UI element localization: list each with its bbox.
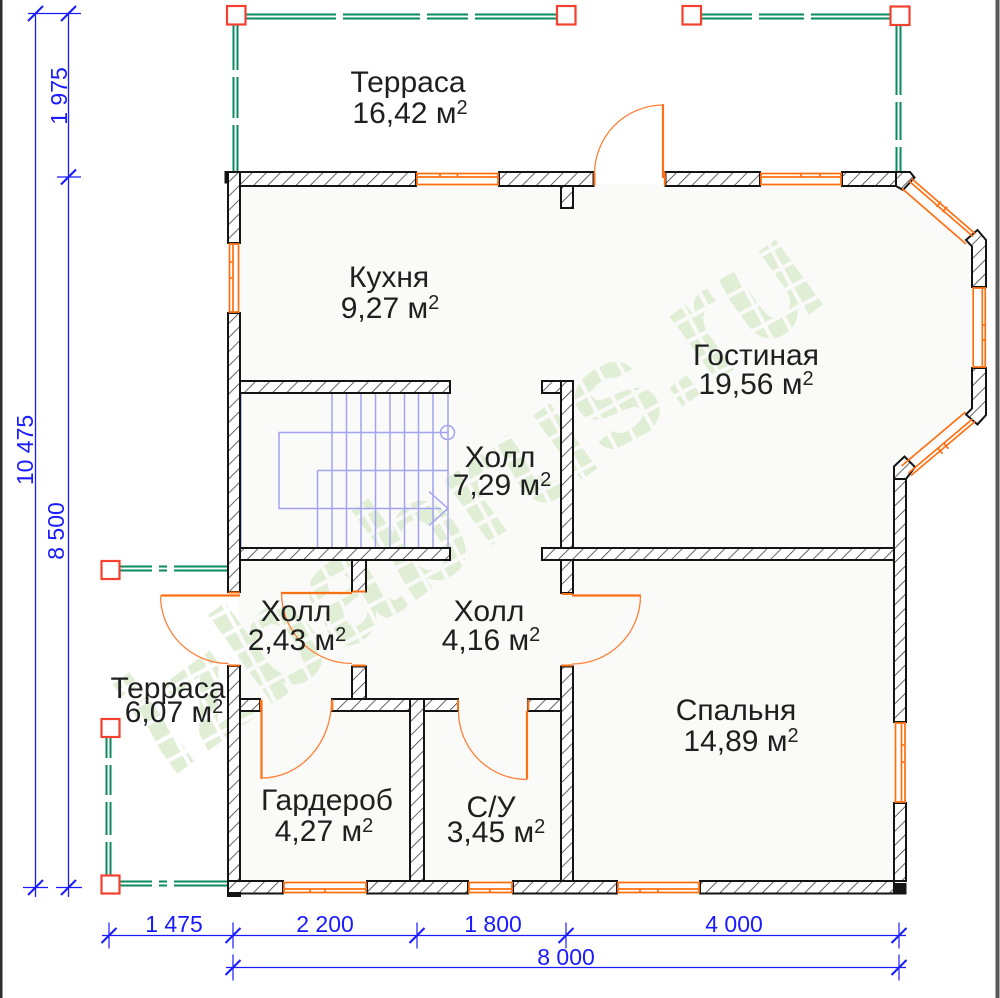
svg-text:3,45 м2: 3,45 м2 <box>447 816 545 849</box>
svg-text:14,89 м2: 14,89 м2 <box>683 725 798 758</box>
svg-text:10 475: 10 475 <box>12 415 38 485</box>
svg-text:1 975: 1 975 <box>46 67 72 125</box>
svg-text:2 200: 2 200 <box>296 911 354 937</box>
svg-text:6,07 м2: 6,07 м2 <box>125 696 223 729</box>
svg-text:9,27 м2: 9,27 м2 <box>341 292 439 325</box>
svg-text:Терраса: Терраса <box>350 66 465 99</box>
svg-text:Гардероб: Гардероб <box>261 784 393 817</box>
svg-text:1 800: 1 800 <box>464 911 522 937</box>
svg-text:2,43 м2: 2,43 м2 <box>248 624 346 657</box>
svg-text:4 000: 4 000 <box>705 911 763 937</box>
svg-text:8 500: 8 500 <box>43 502 69 560</box>
svg-text:1 475: 1 475 <box>145 911 203 937</box>
svg-text:4,16 м2: 4,16 м2 <box>442 624 540 657</box>
svg-text:7,29 м2: 7,29 м2 <box>453 469 551 502</box>
svg-text:8 000: 8 000 <box>537 944 595 970</box>
svg-text:Кухня: Кухня <box>349 261 429 294</box>
svg-text:16,42 м2: 16,42 м2 <box>352 97 467 130</box>
svg-text:19,56 м2: 19,56 м2 <box>698 368 813 401</box>
svg-text:Спальня: Спальня <box>676 694 797 727</box>
svg-text:4,27 м2: 4,27 м2 <box>275 815 373 848</box>
